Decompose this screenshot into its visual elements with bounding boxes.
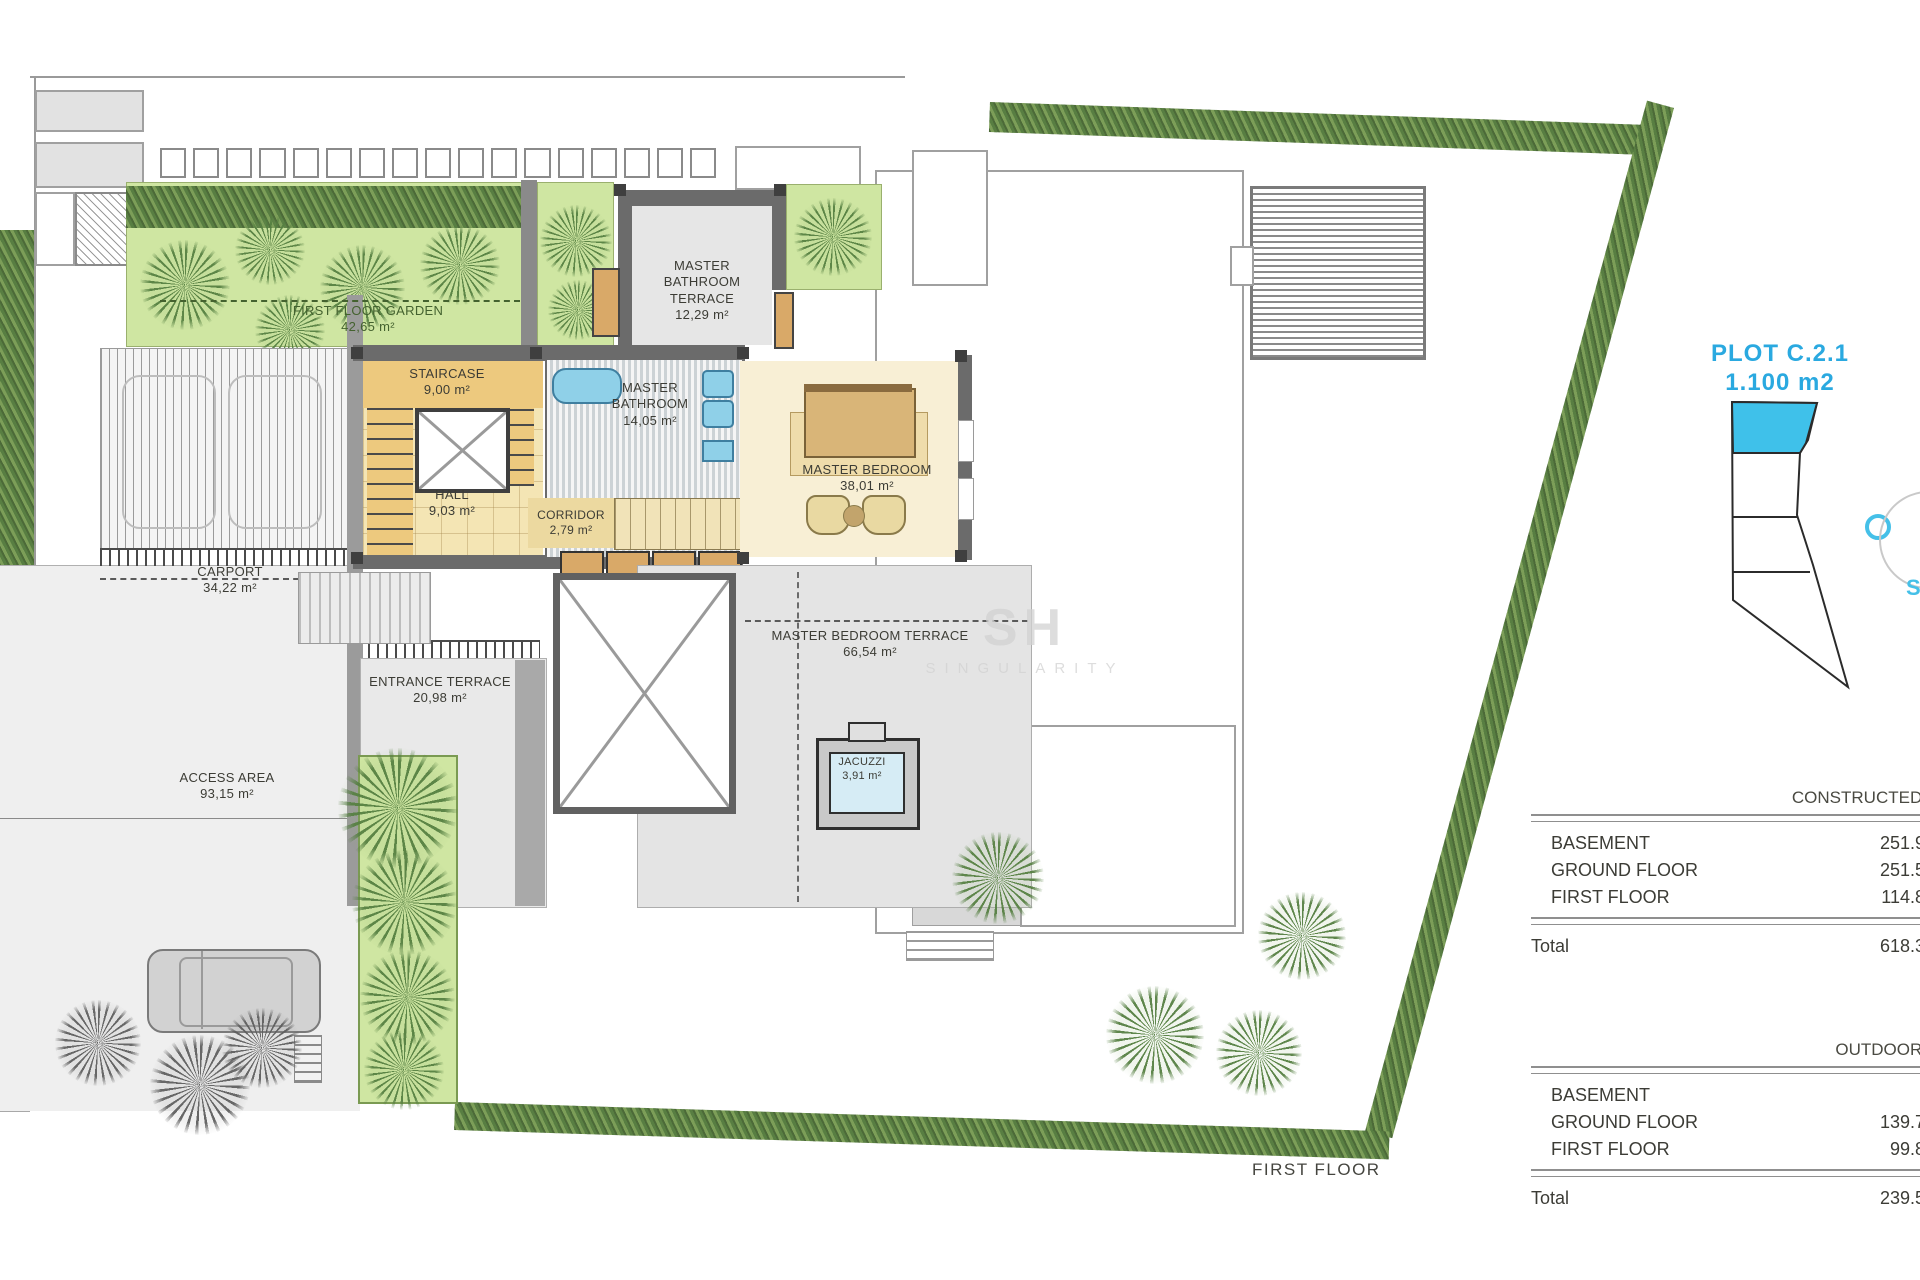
pillar <box>351 552 363 564</box>
table-row: FIRST FLOOR 99.81 m² <box>1531 1136 1920 1163</box>
room-name: ENTRANCE TERRACE <box>369 674 511 690</box>
planter <box>592 268 620 337</box>
terrace-wall-right <box>772 190 786 290</box>
pillar <box>774 184 786 196</box>
room-name: CARPORT <box>197 564 262 580</box>
room-label-hall: HALL 9,03 m² <box>429 487 475 520</box>
constructed-area-table: CONSTRUCTED area BASEMENT 251.95 m² GROU… <box>1531 788 1920 960</box>
room-area: 14,05 m² <box>595 413 705 429</box>
room-name: FIRST FLOOR GARDEN <box>293 303 443 319</box>
slatted-pergola <box>1250 186 1426 360</box>
outdoor-area-table: OUTDOOR area BASEMENT GROUND FLOOR 139.7… <box>1531 1040 1920 1212</box>
top-hedge <box>989 102 1652 155</box>
room-area: 34,22 m² <box>197 580 262 596</box>
pillar <box>955 350 967 362</box>
row-label: FIRST FLOOR <box>1551 1139 1670 1160</box>
skylight-void <box>553 573 736 814</box>
parked-car-outline <box>228 375 322 529</box>
stair-void <box>415 408 510 493</box>
row-label: GROUND FLOOR <box>1551 860 1698 881</box>
room-name: STAIRCASE <box>409 366 484 382</box>
constructed-table-title: CONSTRUCTED area <box>1531 788 1920 808</box>
plot-area: 1.100 m2 <box>1690 369 1870 398</box>
palm-tree <box>952 832 1044 924</box>
palm-tree <box>540 205 612 277</box>
tree <box>55 1000 141 1086</box>
closet-strip <box>614 498 742 550</box>
terrace-wall-left <box>618 190 632 345</box>
row-value: 114.80 m² <box>1881 887 1920 908</box>
armchair <box>862 495 906 535</box>
palm-tree <box>420 225 500 305</box>
plot-key-map: S <box>1700 395 1920 700</box>
pergola-tall-outline <box>912 150 988 286</box>
green-tree <box>1216 1010 1302 1096</box>
green-tree <box>1258 892 1346 980</box>
row-label: BASEMENT <box>1551 833 1650 854</box>
room-name: MASTER BATHROOM <box>595 380 705 413</box>
plot-title: PLOT C.2.1 <box>1690 340 1870 369</box>
palm-tree <box>364 1030 444 1110</box>
palm-tree <box>140 240 230 330</box>
bed <box>804 388 916 458</box>
bottom-hedge <box>454 1102 1389 1159</box>
table-rule <box>1531 917 1920 925</box>
room-label-staircase: STAIRCASE 9,00 m² <box>409 366 484 399</box>
total-label: Total <box>1531 1188 1569 1209</box>
room-label-access-area: ACCESS AREA 93,15 m² <box>179 770 274 803</box>
table-total-row: Total 239.51 m² <box>1531 1185 1920 1212</box>
entrance-steps-deck <box>298 572 431 644</box>
pillar <box>737 347 749 359</box>
bed-headboard <box>804 384 912 392</box>
room-area: 12,29 m² <box>637 307 767 323</box>
room-name: MASTER BATHROOM TERRACE <box>637 258 767 307</box>
jacuzzi <box>816 738 920 830</box>
room-label-carport: CARPORT 34,22 m² <box>197 564 262 597</box>
bedroom-window <box>958 478 974 520</box>
palm-tree <box>794 198 872 276</box>
table-rule <box>1531 1066 1920 1074</box>
pergola-connector <box>1230 246 1254 286</box>
pillar <box>955 550 967 562</box>
room-area: 9,03 m² <box>429 503 475 519</box>
room-area: 93,15 m² <box>179 786 274 802</box>
room-area: 9,00 m² <box>409 382 484 398</box>
room-area: 42,65 m² <box>293 319 443 335</box>
neighbour-hatched-block <box>75 192 131 266</box>
table-row: FIRST FLOOR 114.80 m² <box>1531 884 1920 911</box>
row-value: 251.55 m² <box>1880 860 1920 881</box>
parked-car-outline <box>122 375 216 529</box>
watermark-name: SINGULARITY <box>880 660 1170 677</box>
table-row: BASEMENT 251.95 m² <box>1531 830 1920 857</box>
key-large-circle <box>1880 492 1920 588</box>
table-row: BASEMENT <box>1531 1082 1920 1109</box>
garden-dashed-line <box>160 300 520 302</box>
row-label: GROUND FLOOR <box>1551 1112 1698 1133</box>
table-row: GROUND FLOOR 251.55 m² <box>1531 857 1920 884</box>
room-name: MASTER BEDROOM <box>802 462 931 478</box>
plot-key-highlight <box>1732 402 1817 453</box>
row-value: 139.70 m² <box>1880 1112 1920 1133</box>
plot-title-block: PLOT C.2.1 1.100 m2 <box>1690 340 1870 398</box>
planter <box>774 292 794 349</box>
access-area-line <box>0 818 358 819</box>
room-area: 20,98 m² <box>369 690 511 706</box>
total-value: 618.38 m² <box>1880 936 1920 957</box>
room-name: ACCESS AREA <box>179 770 274 786</box>
table-row: GROUND FLOOR 139.70 m² <box>1531 1109 1920 1136</box>
top-boundary-line <box>30 76 905 78</box>
pillar <box>614 184 626 196</box>
jacuzzi-connector <box>848 722 886 742</box>
room-name: CORRIDOR <box>525 508 617 523</box>
room-label-jacuzzi: JACUZZI 3,91 m² <box>838 756 885 784</box>
room-area: 3,91 m² <box>838 770 885 784</box>
room-label-master-bathroom: MASTER BATHROOM 14,05 m² <box>595 380 705 429</box>
row-label: BASEMENT <box>1551 1085 1650 1106</box>
pillar <box>530 347 542 359</box>
floor-caption: FIRST FLOOR <box>1252 1160 1381 1180</box>
pillar <box>351 347 363 359</box>
palm-tree <box>235 215 305 285</box>
table-rule <box>1531 1169 1920 1177</box>
palm-tree <box>352 850 457 955</box>
table-rule <box>1531 814 1920 822</box>
room-label-master-bedroom: MASTER BEDROOM 38,01 m² <box>802 462 931 495</box>
room-area: 38,01 m² <box>802 478 931 494</box>
bedroom-window <box>958 420 974 462</box>
room-label-first-floor-garden: FIRST FLOOR GARDEN 42,65 m² <box>293 303 443 336</box>
row-value: 251.95 m² <box>1880 833 1920 854</box>
neighbour-block <box>35 90 144 132</box>
room-label-master-bedroom-terrace: MASTER BEDROOM TERRACE 66,54 m² <box>771 628 968 661</box>
room-label-master-bathroom-terrace: MASTER BATHROOM TERRACE 12,29 m² <box>637 258 767 323</box>
total-value: 239.51 m² <box>1880 1188 1920 1209</box>
row-value: 99.81 m² <box>1890 1139 1920 1160</box>
pillar <box>737 552 749 564</box>
garden-top-hedge <box>126 186 522 228</box>
room-name: JACUZZI <box>838 756 885 770</box>
row-label: FIRST FLOOR <box>1551 887 1670 908</box>
bidet <box>702 400 734 428</box>
green-tree <box>1106 986 1204 1084</box>
terrace-side-wall <box>515 660 545 906</box>
side-table <box>843 505 865 527</box>
room-area: 66,54 m² <box>771 644 968 660</box>
key-s-label: S <box>1906 575 1920 600</box>
room-label-corridor: CORRIDOR 2,79 m² <box>525 508 617 538</box>
room-name: HALL <box>429 487 475 503</box>
exterior-steps <box>906 931 994 961</box>
room-name: MASTER BEDROOM TERRACE <box>771 628 968 644</box>
sink <box>702 440 734 462</box>
pergola-slats-row <box>160 148 716 178</box>
total-label: Total <box>1531 936 1569 957</box>
room-area: 2,79 m² <box>525 523 617 538</box>
room-label-entrance-terrace: ENTRANCE TERRACE 20,98 m² <box>369 674 511 707</box>
tree <box>222 1008 302 1088</box>
floor-plan-page: FIRST FLOOR GARDEN 42,65 m² MASTER BATHR… <box>0 0 1920 1280</box>
toilet <box>702 370 734 398</box>
neighbour-block <box>35 192 75 266</box>
stair-treads <box>367 405 413 560</box>
garden-wall-pillar <box>521 180 537 345</box>
pool-outline <box>1020 725 1236 927</box>
table-total-row: Total 618.38 m² <box>1531 933 1920 960</box>
outdoor-table-title: OUTDOOR area <box>1531 1040 1920 1060</box>
terrace-wall-top <box>618 190 786 206</box>
